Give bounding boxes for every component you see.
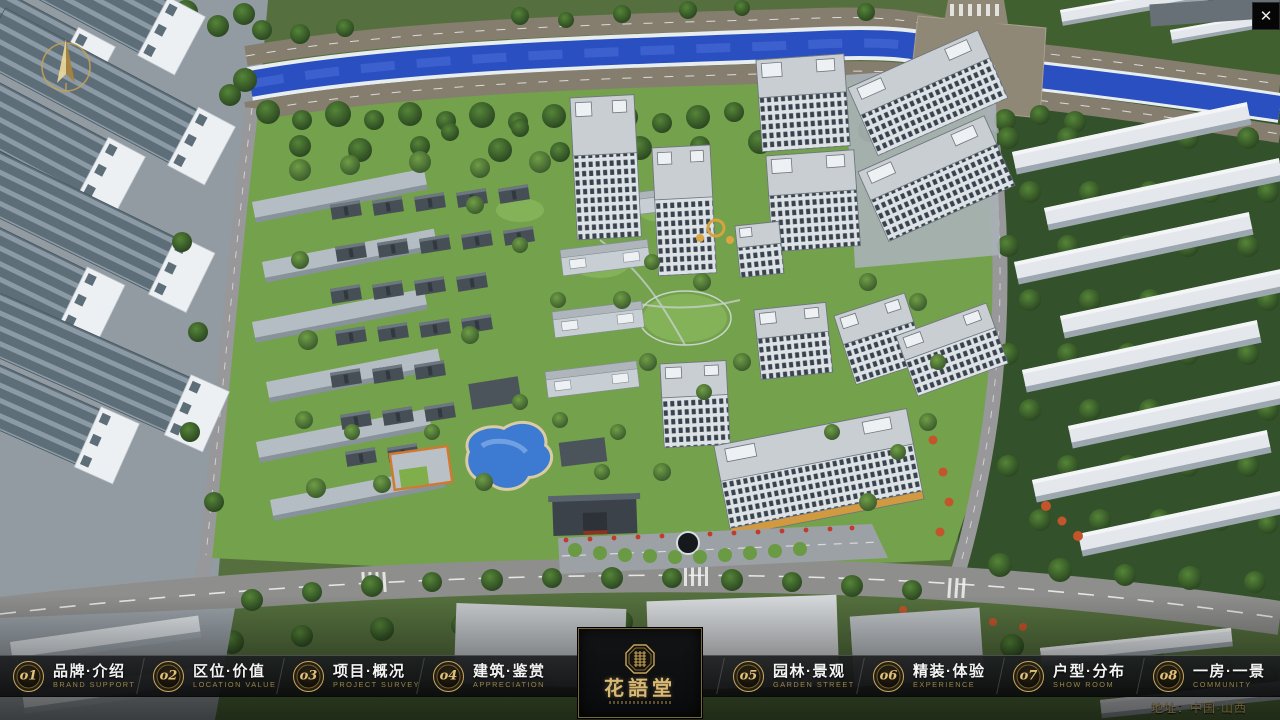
nav-sublabel: EXPERIENCE xyxy=(913,681,980,688)
nav-label: 园林·景观 xyxy=(773,664,860,679)
nav-sublabel: LOCATION VALUE xyxy=(193,681,273,688)
nav-label: 项目·概况 xyxy=(333,664,420,679)
number-badge-05-icon: o5 xyxy=(733,661,764,692)
nav-item-interior-experience[interactable]: o6 精装·体验 EXPERIENCE xyxy=(860,656,1000,696)
nav-item-brand-intro[interactable]: o1 品牌·介绍 BRAND SUPPORT xyxy=(0,656,140,696)
nav-item-architecture-appreciation[interactable]: o4 建筑·鉴赏 APPRECIATION xyxy=(420,656,560,696)
close-button[interactable]: ✕ xyxy=(1252,2,1280,30)
logo-subtitle-line xyxy=(609,701,671,704)
nav-label: 建筑·鉴赏 xyxy=(473,664,551,679)
number-badge-04-icon: o4 xyxy=(433,661,464,692)
seal-emblem-icon xyxy=(624,643,656,675)
logo-title: 花語堂 xyxy=(604,678,676,698)
nav-item-project-overview[interactable]: o3 项目·概况 PROJECT SURVEY xyxy=(280,656,420,696)
nav-sublabel: BRAND SUPPORT xyxy=(53,681,133,688)
nav-label: 区位·价值 xyxy=(193,664,280,679)
number-badge-08-icon: o8 xyxy=(1153,661,1184,692)
number-badge-03-icon: o3 xyxy=(293,661,324,692)
nav-item-room-view[interactable]: o8 一房·一景 COMMUNITY xyxy=(1140,656,1280,696)
number-badge-01-icon: o1 xyxy=(13,661,44,692)
nav-label: 品牌·介绍 xyxy=(53,664,140,679)
nav-sublabel: GARDEN STREET xyxy=(773,681,853,688)
nav-sublabel: COMMUNITY xyxy=(1193,681,1260,688)
project-logo[interactable]: 花語堂 xyxy=(578,628,702,718)
nav-label: 户型·分布 xyxy=(1053,664,1126,679)
nav-sublabel: SHOW ROOM xyxy=(1053,681,1120,688)
nav-label: 一房·一景 xyxy=(1193,664,1266,679)
nav-sublabel: PROJECT SURVEY xyxy=(333,681,413,688)
nav-item-garden-landscape[interactable]: o5 园林·景观 GARDEN STREET xyxy=(720,656,860,696)
nav-item-floorplan-distribution[interactable]: o7 户型·分布 SHOW ROOM xyxy=(1000,656,1140,696)
compass-north-icon xyxy=(36,33,96,95)
address-text: 地址：中国·山西 xyxy=(1151,699,1247,716)
nav-item-location-value[interactable]: o2 区位·价值 LOCATION VALUE xyxy=(140,656,280,696)
nav-label: 精装·体验 xyxy=(913,664,986,679)
number-badge-02-icon: o2 xyxy=(153,661,184,692)
aerial-rendering-3d-map[interactable] xyxy=(0,0,1280,720)
number-badge-07-icon: o7 xyxy=(1013,661,1044,692)
nav-sublabel: APPRECIATION xyxy=(473,681,545,688)
number-badge-06-icon: o6 xyxy=(873,661,904,692)
